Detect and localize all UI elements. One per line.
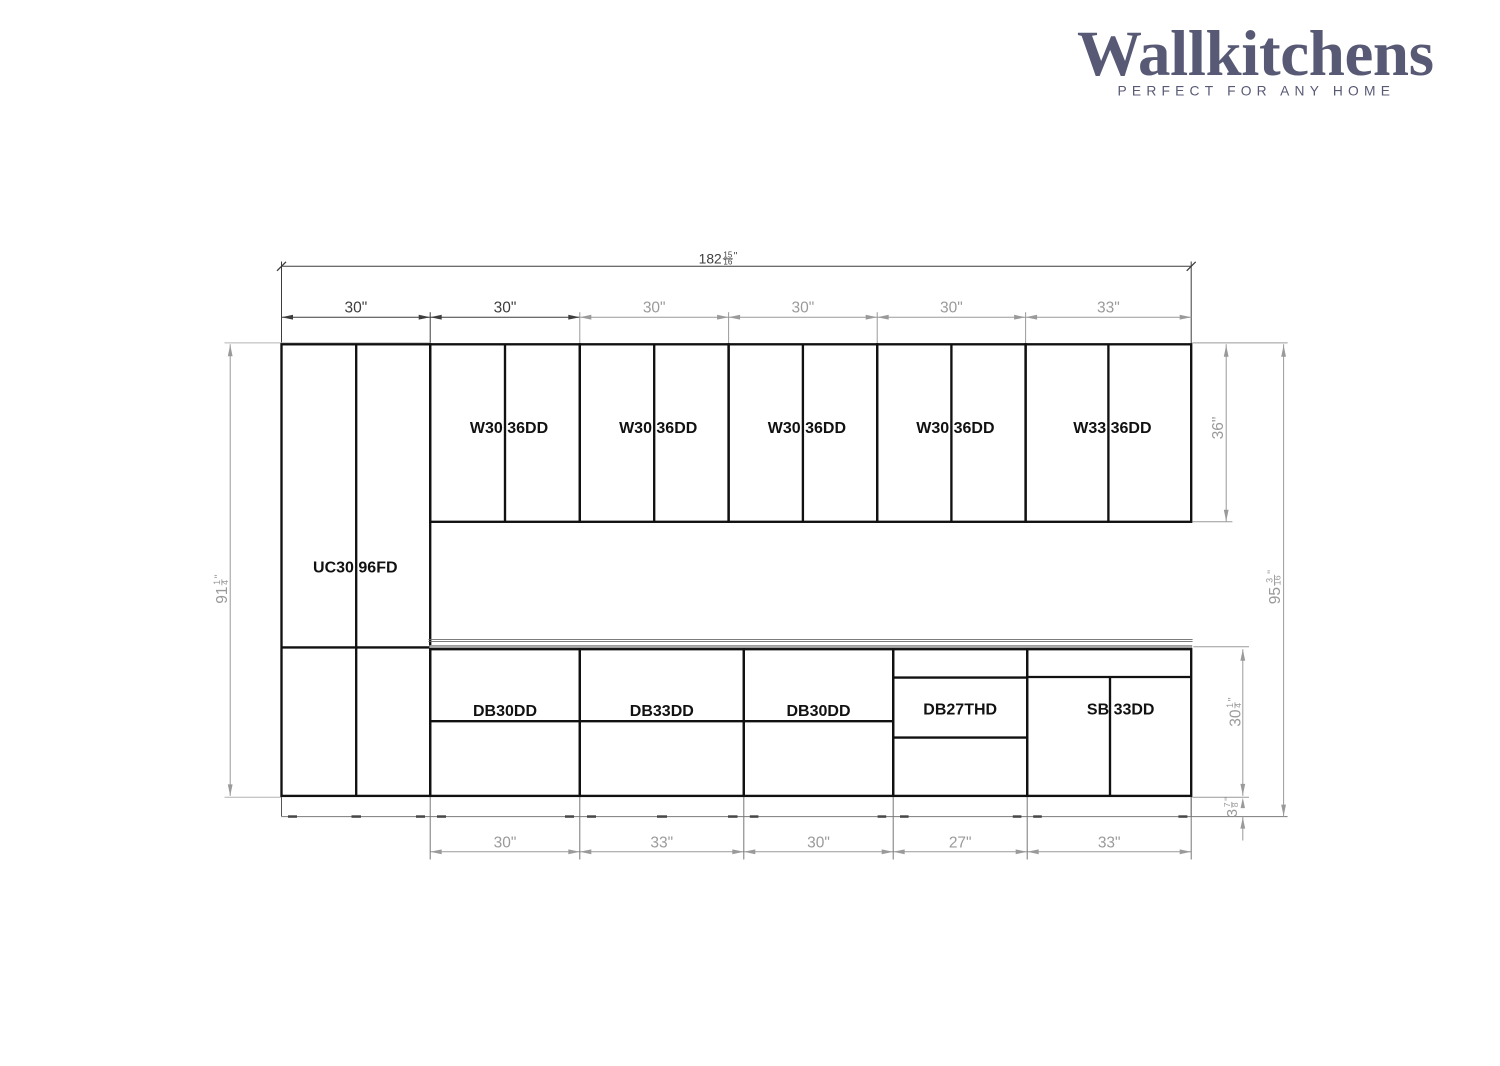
svg-text:4: 4	[1233, 703, 1243, 708]
svg-text:": "	[1226, 697, 1238, 701]
svg-text:182: 182	[699, 252, 722, 267]
svg-text:30": 30"	[940, 300, 963, 317]
svg-text:16: 16	[723, 257, 732, 266]
svg-text:3: 3	[1224, 809, 1241, 817]
svg-text:": "	[1266, 570, 1278, 574]
svg-text:": "	[734, 251, 738, 262]
svg-text:DB30DD: DB30DD	[786, 703, 850, 720]
svg-text:95: 95	[1267, 587, 1284, 604]
svg-text:": "	[1223, 797, 1235, 801]
svg-text:33": 33"	[1097, 300, 1120, 317]
svg-text:36": 36"	[1210, 417, 1227, 440]
svg-text:DB27THD: DB27THD	[923, 702, 997, 719]
svg-text:30: 30	[1227, 709, 1244, 727]
svg-text:27": 27"	[949, 835, 972, 852]
svg-text:30": 30"	[494, 300, 517, 317]
svg-text:30": 30"	[643, 300, 666, 317]
svg-text:30": 30"	[807, 835, 830, 852]
svg-text:SB 33DD: SB 33DD	[1087, 702, 1155, 719]
svg-text:W30 36DD: W30 36DD	[470, 420, 548, 437]
svg-text:DB30DD: DB30DD	[473, 703, 537, 720]
svg-text:30": 30"	[792, 300, 815, 317]
svg-text:4: 4	[220, 580, 230, 585]
svg-text:8: 8	[1230, 802, 1240, 807]
svg-text:33": 33"	[650, 835, 673, 852]
svg-text:30": 30"	[344, 300, 367, 317]
svg-text:Wallkitchens: Wallkitchens	[1077, 18, 1434, 90]
svg-text:W30 36DD: W30 36DD	[768, 420, 846, 437]
svg-text:30": 30"	[494, 835, 517, 852]
svg-text:UC30 96FD: UC30 96FD	[313, 560, 397, 577]
svg-text:W30 36DD: W30 36DD	[916, 420, 994, 437]
svg-text:W33 36DD: W33 36DD	[1073, 420, 1151, 437]
svg-text:W30 36DD: W30 36DD	[619, 420, 697, 437]
svg-text:91: 91	[214, 587, 231, 604]
svg-text:": "	[213, 574, 225, 578]
svg-text:33": 33"	[1098, 835, 1121, 852]
svg-text:16: 16	[1273, 575, 1283, 585]
svg-text:DB33DD: DB33DD	[630, 703, 694, 720]
